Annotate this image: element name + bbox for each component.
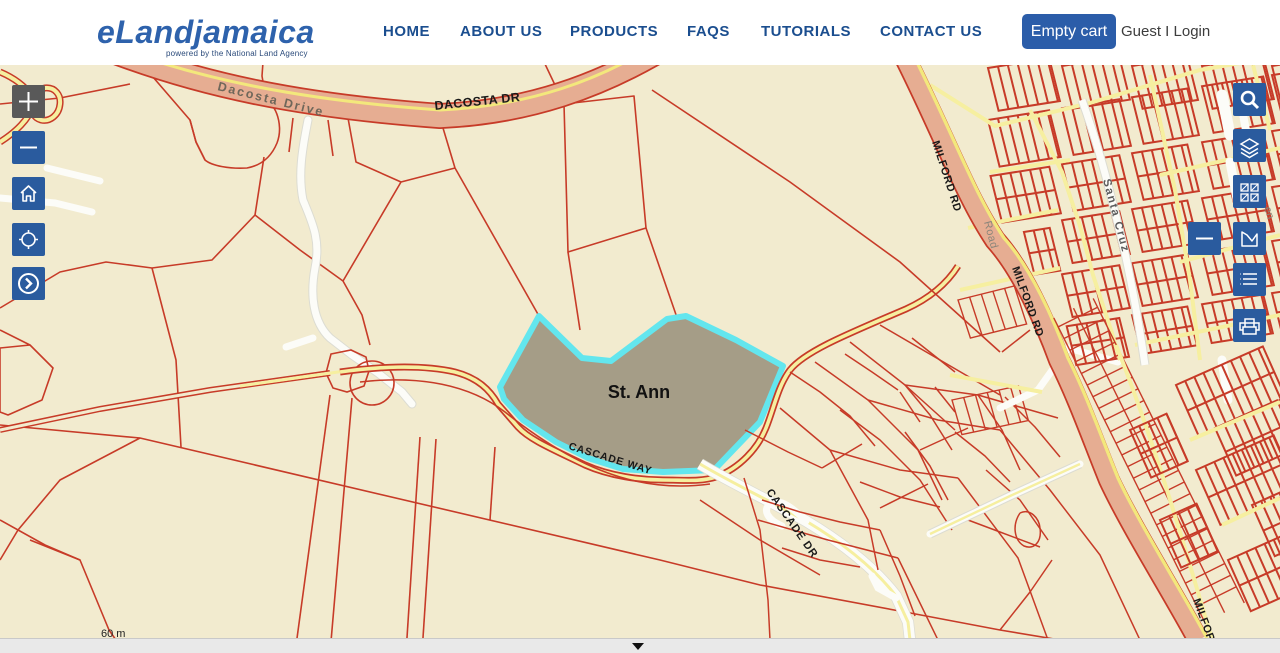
svg-text:60 m: 60 m — [101, 628, 125, 638]
svg-text:St. Ann: St. Ann — [608, 382, 670, 402]
